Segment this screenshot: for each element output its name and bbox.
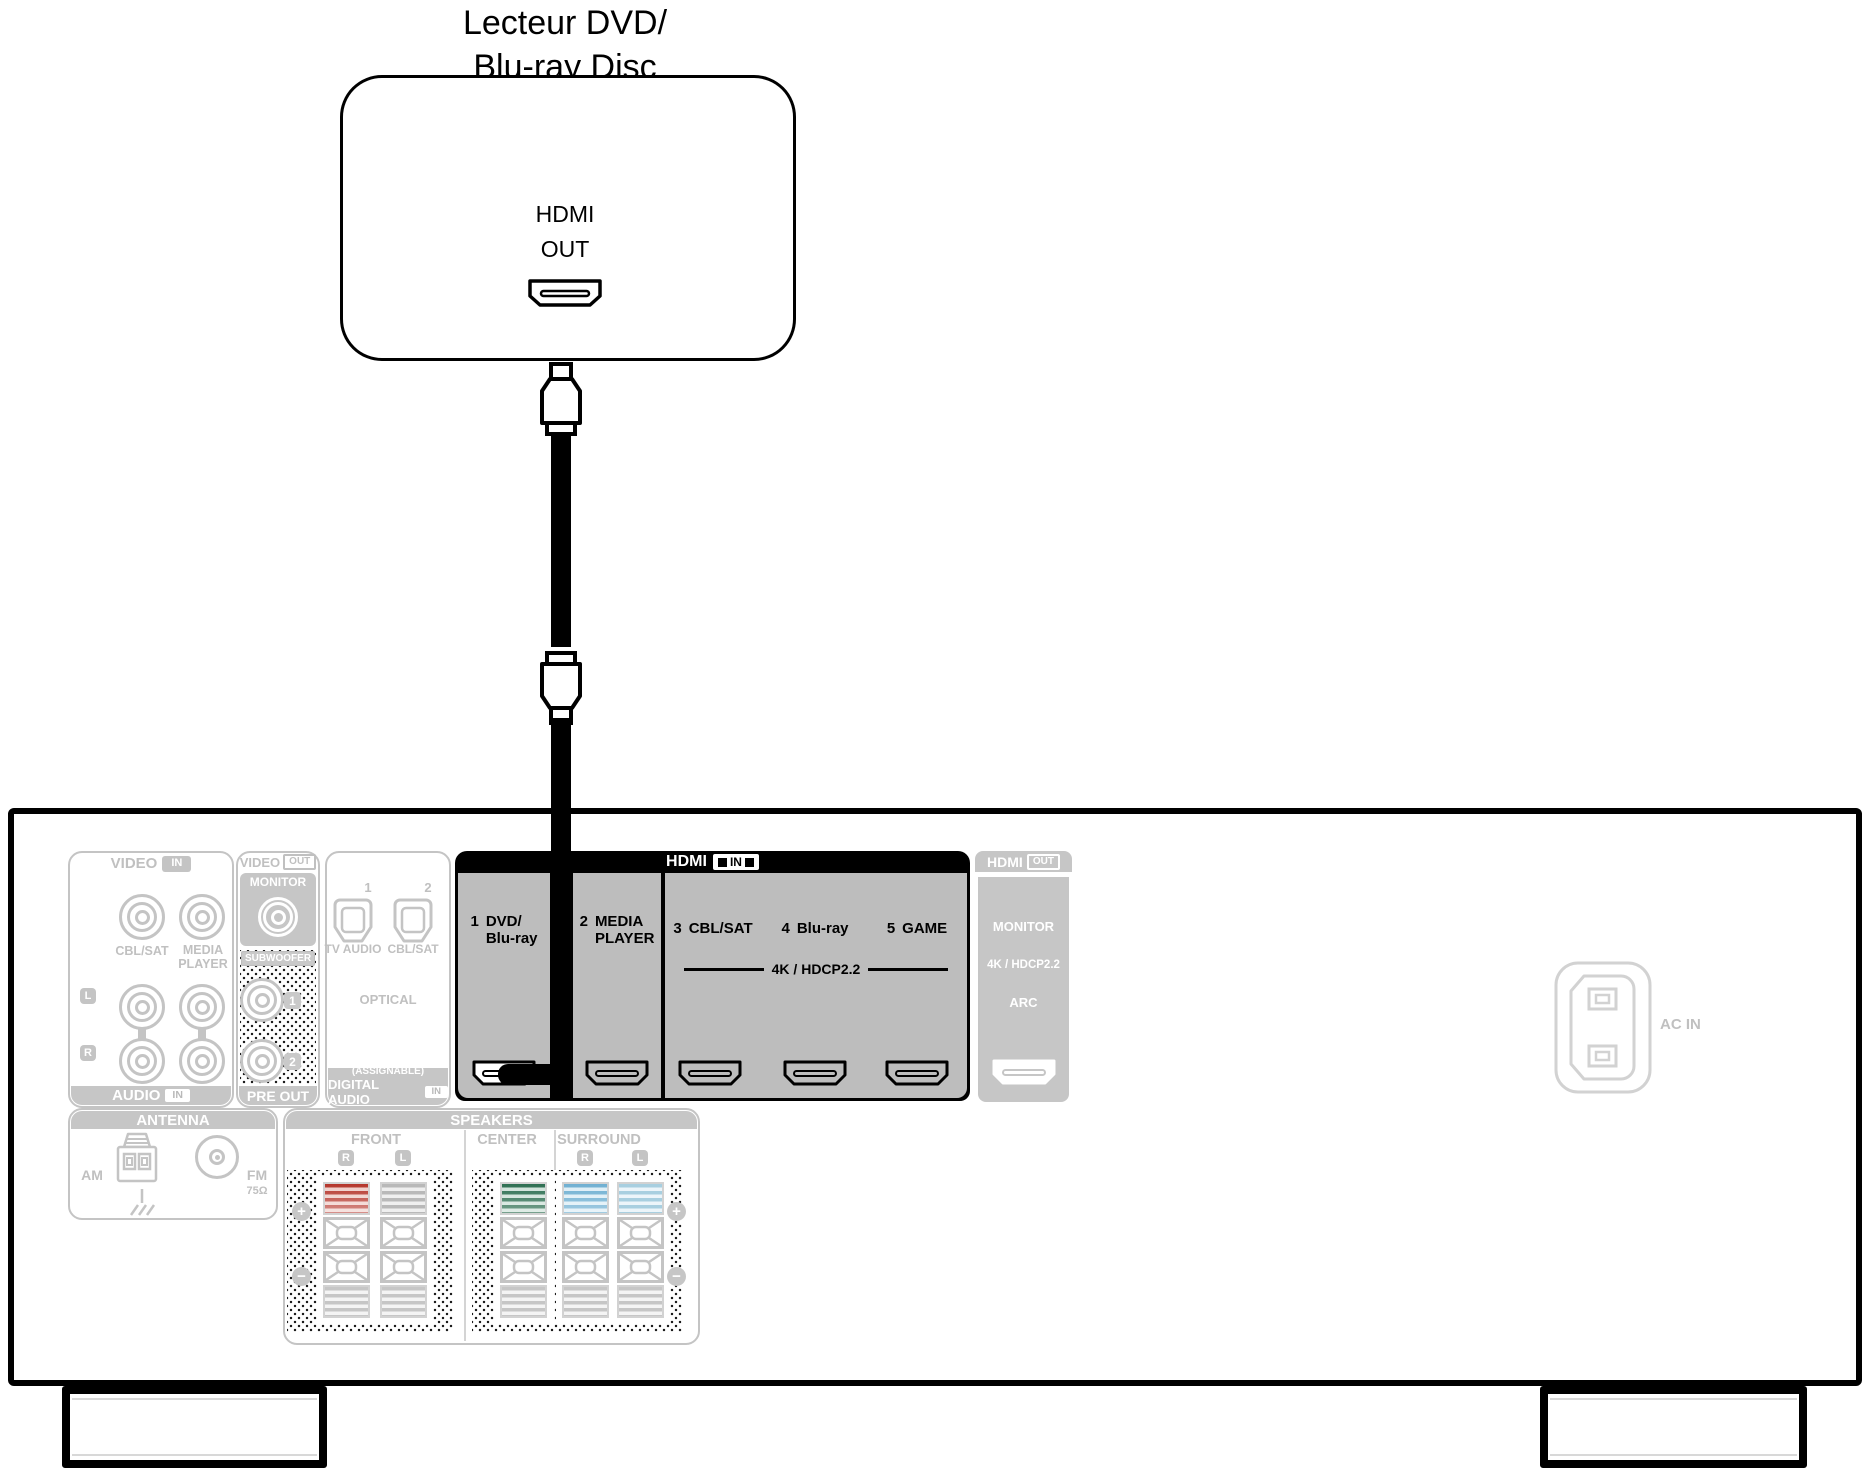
port5-name: GAME: [902, 920, 947, 937]
video-out-label: VIDEO: [240, 855, 280, 870]
audio-l-jack-1: [119, 984, 165, 1030]
surround-r-base: [562, 1285, 609, 1318]
front-r-cap: [323, 1182, 370, 1215]
hdmi-port2-cell: 2 MEDIA PLAYER: [573, 873, 661, 1098]
audio-r-jack-1: [119, 1038, 165, 1084]
hdmi-port4-icon: [782, 1059, 848, 1092]
front-label: FRONT: [336, 1132, 416, 1148]
audio-in-badge: IN: [165, 1089, 190, 1103]
surround-l-terminal: [617, 1182, 664, 1318]
pre-out-footer: PRE OUT: [239, 1086, 317, 1105]
hdcp-line-right: [868, 968, 948, 971]
digital-audio-in-badge: IN: [425, 1086, 449, 1099]
assignable-label: (ASSIGNABLE): [352, 1066, 424, 1077]
speakers-header: SPEAKERS: [286, 1111, 697, 1129]
optical-label: OPTICAL: [325, 992, 451, 1007]
hdmi-port5-label: 5 GAME: [871, 920, 963, 937]
surround-r-terminal: [562, 1182, 609, 1318]
video-in-header: VIDEO IN: [68, 855, 234, 872]
surround-l-base: [617, 1285, 664, 1318]
surround-label: SURROUND: [556, 1132, 642, 1148]
front-l-terminal: [380, 1182, 427, 1318]
digital-audio-footer: (ASSIGNABLE) DIGITAL AUDIO IN: [328, 1068, 448, 1105]
center-label: CENTER: [467, 1132, 547, 1148]
media-player-label: MEDIA PLAYER: [170, 944, 236, 972]
front-r-terminal: [323, 1182, 370, 1318]
center-cap: [500, 1182, 547, 1215]
player-port-label-out: OUT: [343, 236, 787, 263]
hdmi-port2-label: 2 MEDIA PLAYER: [573, 913, 661, 948]
subwoofer-2-badge: 2: [284, 1053, 301, 1070]
digital-audio-label: DIGITAL AUDIO: [328, 1077, 422, 1107]
hdmi-ports345-cell: 3 CBL/SAT 4 Blu-ray 5 GAME 4K / HDCP2.2: [665, 873, 967, 1098]
hdmi-out-hdcp-label: 4K / HDCP2.2: [978, 959, 1069, 971]
hdmi-cable-plug-top-icon: [538, 361, 584, 442]
receiver-foot-left: [62, 1386, 327, 1468]
audio-in-footer: AUDIO IN: [71, 1086, 231, 1105]
center-terminal: [500, 1182, 547, 1318]
front-r-base: [323, 1285, 370, 1318]
subwoofer-label: SUBWOOFER: [241, 951, 315, 966]
speakers-minus-right: −: [667, 1267, 686, 1286]
hdmi-cable-upper: [551, 433, 571, 647]
hdmi-out-header: HDMI OUT: [975, 851, 1072, 872]
subwoofer-jack-1: [240, 978, 284, 1022]
front-l-base: [380, 1285, 427, 1318]
front-l-badge: L: [395, 1150, 411, 1166]
port3-name: CBL/SAT: [689, 920, 753, 937]
dvd-player-box: HDMI OUT: [340, 75, 796, 361]
surround-r-cap: [562, 1182, 609, 1215]
video-media-player-jack: [179, 894, 225, 940]
hdmi-port5-icon: [884, 1059, 950, 1092]
monitor-label: MONITOR: [240, 875, 316, 889]
hdmi-out-port-icon: [991, 1058, 1057, 1091]
hdmi-port3-icon: [677, 1059, 743, 1092]
audio-l-jack-2: [179, 984, 225, 1030]
ac-in-label: AC IN: [1660, 1016, 1720, 1033]
monitor-panel: MONITOR: [240, 873, 316, 946]
port2-number: 2: [580, 913, 588, 930]
ground-icon: [128, 1188, 156, 1223]
video-out-header: VIDEO OUT: [236, 854, 320, 870]
audio-r-jack-2: [179, 1038, 225, 1084]
front-l-cap: [380, 1182, 427, 1215]
connection-diagram: Lecteur DVD/ Blu-ray Disc HDMI OUT: [0, 0, 1870, 1472]
port2-name: MEDIA PLAYER: [595, 913, 654, 948]
fm-jack: [195, 1135, 239, 1179]
hdcp-label: 4K / HDCP2.2: [772, 961, 861, 977]
port1-name: DVD/ Blu-ray: [486, 913, 538, 948]
ac-inlet-icon: [1553, 960, 1653, 1100]
port1-number: 1: [470, 913, 478, 930]
hdmi-out-port-icon: [343, 278, 787, 308]
hdmi-in-label: HDMI: [666, 853, 707, 871]
fm-label: FM: [240, 1167, 274, 1183]
speakers-minus-left: −: [292, 1267, 311, 1286]
subwoofer-1-badge: 1: [284, 992, 301, 1009]
port3-number: 3: [673, 920, 681, 937]
hdmi-cable-elbow-plug: [498, 1064, 571, 1085]
hdmi-port1-label: 1 DVD/ Blu-ray: [458, 913, 550, 948]
audio-left-badge: L: [80, 988, 96, 1004]
player-port-label-hdmi: HDMI: [343, 201, 787, 228]
surround-l-badge: L: [632, 1150, 648, 1166]
hdmi-out-monitor-label: MONITOR: [978, 919, 1069, 934]
front-r-badge: R: [338, 1150, 354, 1166]
am-label: AM: [74, 1167, 110, 1183]
speakers-plus-left: +: [292, 1202, 311, 1221]
speakers-divider-1: [464, 1130, 466, 1341]
hdcp-row: 4K / HDCP2.2: [665, 961, 967, 977]
hdmi-port3-label: 3 CBL/SAT: [667, 920, 759, 937]
receiver-foot-right: [1540, 1386, 1807, 1468]
hdmi-out-label: HDMI: [987, 854, 1023, 870]
optical-2-number: 2: [418, 880, 438, 895]
hdmi-out-badge: OUT: [1027, 854, 1060, 870]
digital-cbl-sat-label: CBL/SAT: [384, 942, 442, 956]
hdcp-line-left: [684, 968, 764, 971]
video-in-badge: IN: [162, 856, 191, 872]
port4-name: Blu-ray: [797, 920, 849, 937]
hdmi-cable-plug-bottom-icon: [538, 645, 584, 726]
surround-l-cap: [617, 1182, 664, 1215]
hdmi-in-badge: IN: [713, 854, 759, 870]
hdmi-out-arc-label: ARC: [978, 995, 1069, 1010]
cbl-sat-label: CBL/SAT: [106, 944, 178, 958]
speakers-plus-right: +: [667, 1202, 686, 1221]
monitor-jack: [258, 897, 298, 937]
subwoofer-area: SUBWOOFER 1 2: [240, 950, 316, 1084]
hdmi-port4-label: 4 Blu-ray: [769, 920, 861, 937]
antenna-header: ANTENNA: [71, 1111, 275, 1129]
audio-in-label: AUDIO: [112, 1087, 160, 1104]
hdmi-cable-lower: [551, 718, 571, 1086]
optical-1-number: 1: [358, 880, 378, 895]
subwoofer-jack-2: [240, 1039, 284, 1083]
port5-number: 5: [887, 920, 895, 937]
hdmi-in-header: HDMI IN: [455, 851, 970, 873]
video-in-label: VIDEO: [111, 855, 158, 872]
am-terminal-icon: [115, 1131, 159, 1194]
video-cbl-sat-jack: [119, 894, 165, 940]
port4-number: 4: [781, 920, 789, 937]
video-out-badge: OUT: [283, 854, 316, 870]
hdmi-port2-icon: [584, 1059, 650, 1092]
surround-r-badge: R: [577, 1150, 593, 1166]
fm-impedance-label: 75Ω: [240, 1185, 274, 1197]
hdmi-out-panel: MONITOR 4K / HDCP2.2 ARC: [978, 877, 1069, 1102]
tv-audio-label: TV AUDIO: [324, 942, 382, 956]
audio-right-badge: R: [80, 1045, 96, 1061]
center-base: [500, 1285, 547, 1318]
